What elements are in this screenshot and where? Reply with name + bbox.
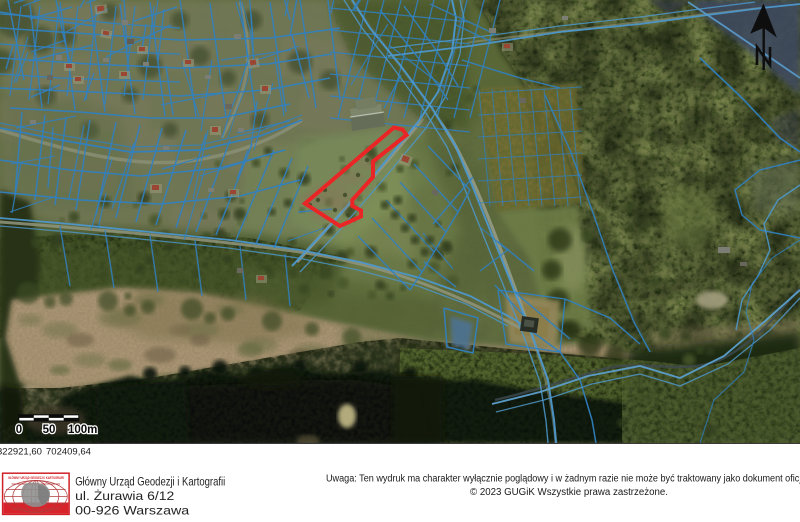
svg-text:ul. Żurawia 6/12: ul. Żurawia 6/12 bbox=[75, 489, 174, 503]
svg-text:322921,60: 322921,60 bbox=[0, 447, 42, 458]
svg-text:Główny Urząd Geodezji i Kartog: Główny Urząd Geodezji i Kartografii bbox=[75, 475, 225, 489]
svg-text:00-926 Warszawa: 00-926 Warszawa bbox=[75, 503, 189, 517]
svg-text:Uwaga: Ten wydruk ma charakter: Uwaga: Ten wydruk ma charakter wyłącznie… bbox=[326, 474, 800, 485]
svg-text:702409,64: 702409,64 bbox=[46, 447, 91, 458]
svg-text:© 2023 GUGiK Wszystkie prawa z: © 2023 GUGiK Wszystkie prawa zastrzeżone… bbox=[470, 487, 668, 498]
svg-text:GŁÓWNY URZĄD GEODEZJI I KARTOG: GŁÓWNY URZĄD GEODEZJI I KARTOGRAFII bbox=[8, 475, 64, 480]
svg-text:50: 50 bbox=[43, 424, 56, 436]
svg-text:100m: 100m bbox=[68, 424, 97, 436]
svg-text:0: 0 bbox=[16, 424, 22, 436]
